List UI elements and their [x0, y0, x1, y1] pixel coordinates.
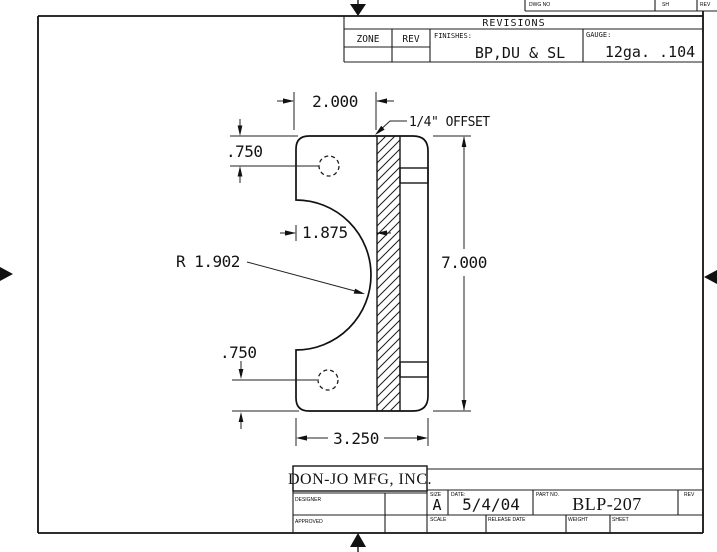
dwg-no-label: DWG NO	[529, 2, 550, 8]
drawing-sheet: DWG NO SH REV REVISIONS ZONE REV FINISHE…	[0, 0, 717, 552]
centering-arrow-left	[0, 267, 13, 281]
dim-width-top: 2.000	[277, 92, 394, 130]
revisions-table: REVISIONS ZONE REV FINISHES: BP,DU & SL …	[344, 16, 703, 62]
dim-width-overall: 3.250	[296, 418, 428, 448]
rev-label-top: REV	[700, 2, 711, 8]
dim-height-text: 7.000	[441, 253, 487, 272]
gauge-label: GAUGE:	[586, 31, 611, 39]
hole-top	[319, 156, 339, 176]
part-no-value: BLP-207	[572, 494, 642, 514]
size-value: A	[432, 496, 441, 514]
rev-label-block: REV	[684, 492, 695, 498]
dim-hole-bottom-text: .750	[220, 343, 257, 362]
dim-width-overall-text: 3.250	[333, 429, 379, 448]
company-name: DON-JO MFG, INC.	[288, 471, 432, 488]
dim-hole-top-text: .750	[226, 142, 263, 161]
revisions-title: REVISIONS	[482, 18, 545, 29]
part-outline	[296, 136, 428, 411]
note-offset-text: 1/4" OFFSET	[409, 115, 490, 130]
dim-hole-top: .750	[226, 119, 319, 183]
sh-label: SH	[662, 2, 669, 8]
centering-arrow-right	[704, 270, 717, 284]
hole-bottom	[318, 370, 338, 390]
note-offset: 1/4" OFFSET	[375, 115, 490, 135]
sheet-header-strip: DWG NO SH REV	[525, 0, 717, 11]
centering-arrow-top	[350, 0, 366, 16]
rev-label: REV	[402, 34, 419, 45]
finishes-value: BP,DU & SL	[475, 44, 565, 62]
dim-hole-bottom: .750	[220, 343, 317, 429]
finishes-label: FINISHES:	[434, 32, 472, 40]
section-hatch-web	[377, 136, 400, 411]
weight-label: WEIGHT	[568, 517, 588, 523]
designer-label: DESIGNER	[295, 497, 322, 503]
centering-arrow-bottom	[350, 533, 366, 552]
dim-web: 1.875	[280, 223, 391, 242]
zone-label: ZONE	[357, 34, 380, 45]
dim-width-top-text: 2.000	[312, 92, 358, 111]
sheet-label: SHEET	[612, 517, 629, 523]
gauge-value: 12ga. .104	[605, 43, 695, 61]
date-value: 5/4/04	[462, 495, 520, 514]
scale-label: SCALE	[430, 517, 447, 523]
dim-radius: R 1.902	[176, 252, 365, 294]
release-date-label: RELEASE DATE	[488, 517, 526, 523]
approved-label: APPROVED	[295, 519, 323, 525]
dim-height: 7.000	[433, 136, 487, 411]
title-block: DON-JO MFG, INC. DESIGNER APPROVED SIZE …	[288, 466, 703, 533]
section-hatch-flange-bottom	[400, 362, 428, 377]
dim-web-text: 1.875	[302, 223, 348, 242]
dim-radius-text: R 1.902	[176, 252, 240, 271]
part-no-label: PART NO.	[536, 492, 559, 498]
part-view	[296, 136, 428, 411]
section-hatch-flange-top	[400, 168, 428, 183]
